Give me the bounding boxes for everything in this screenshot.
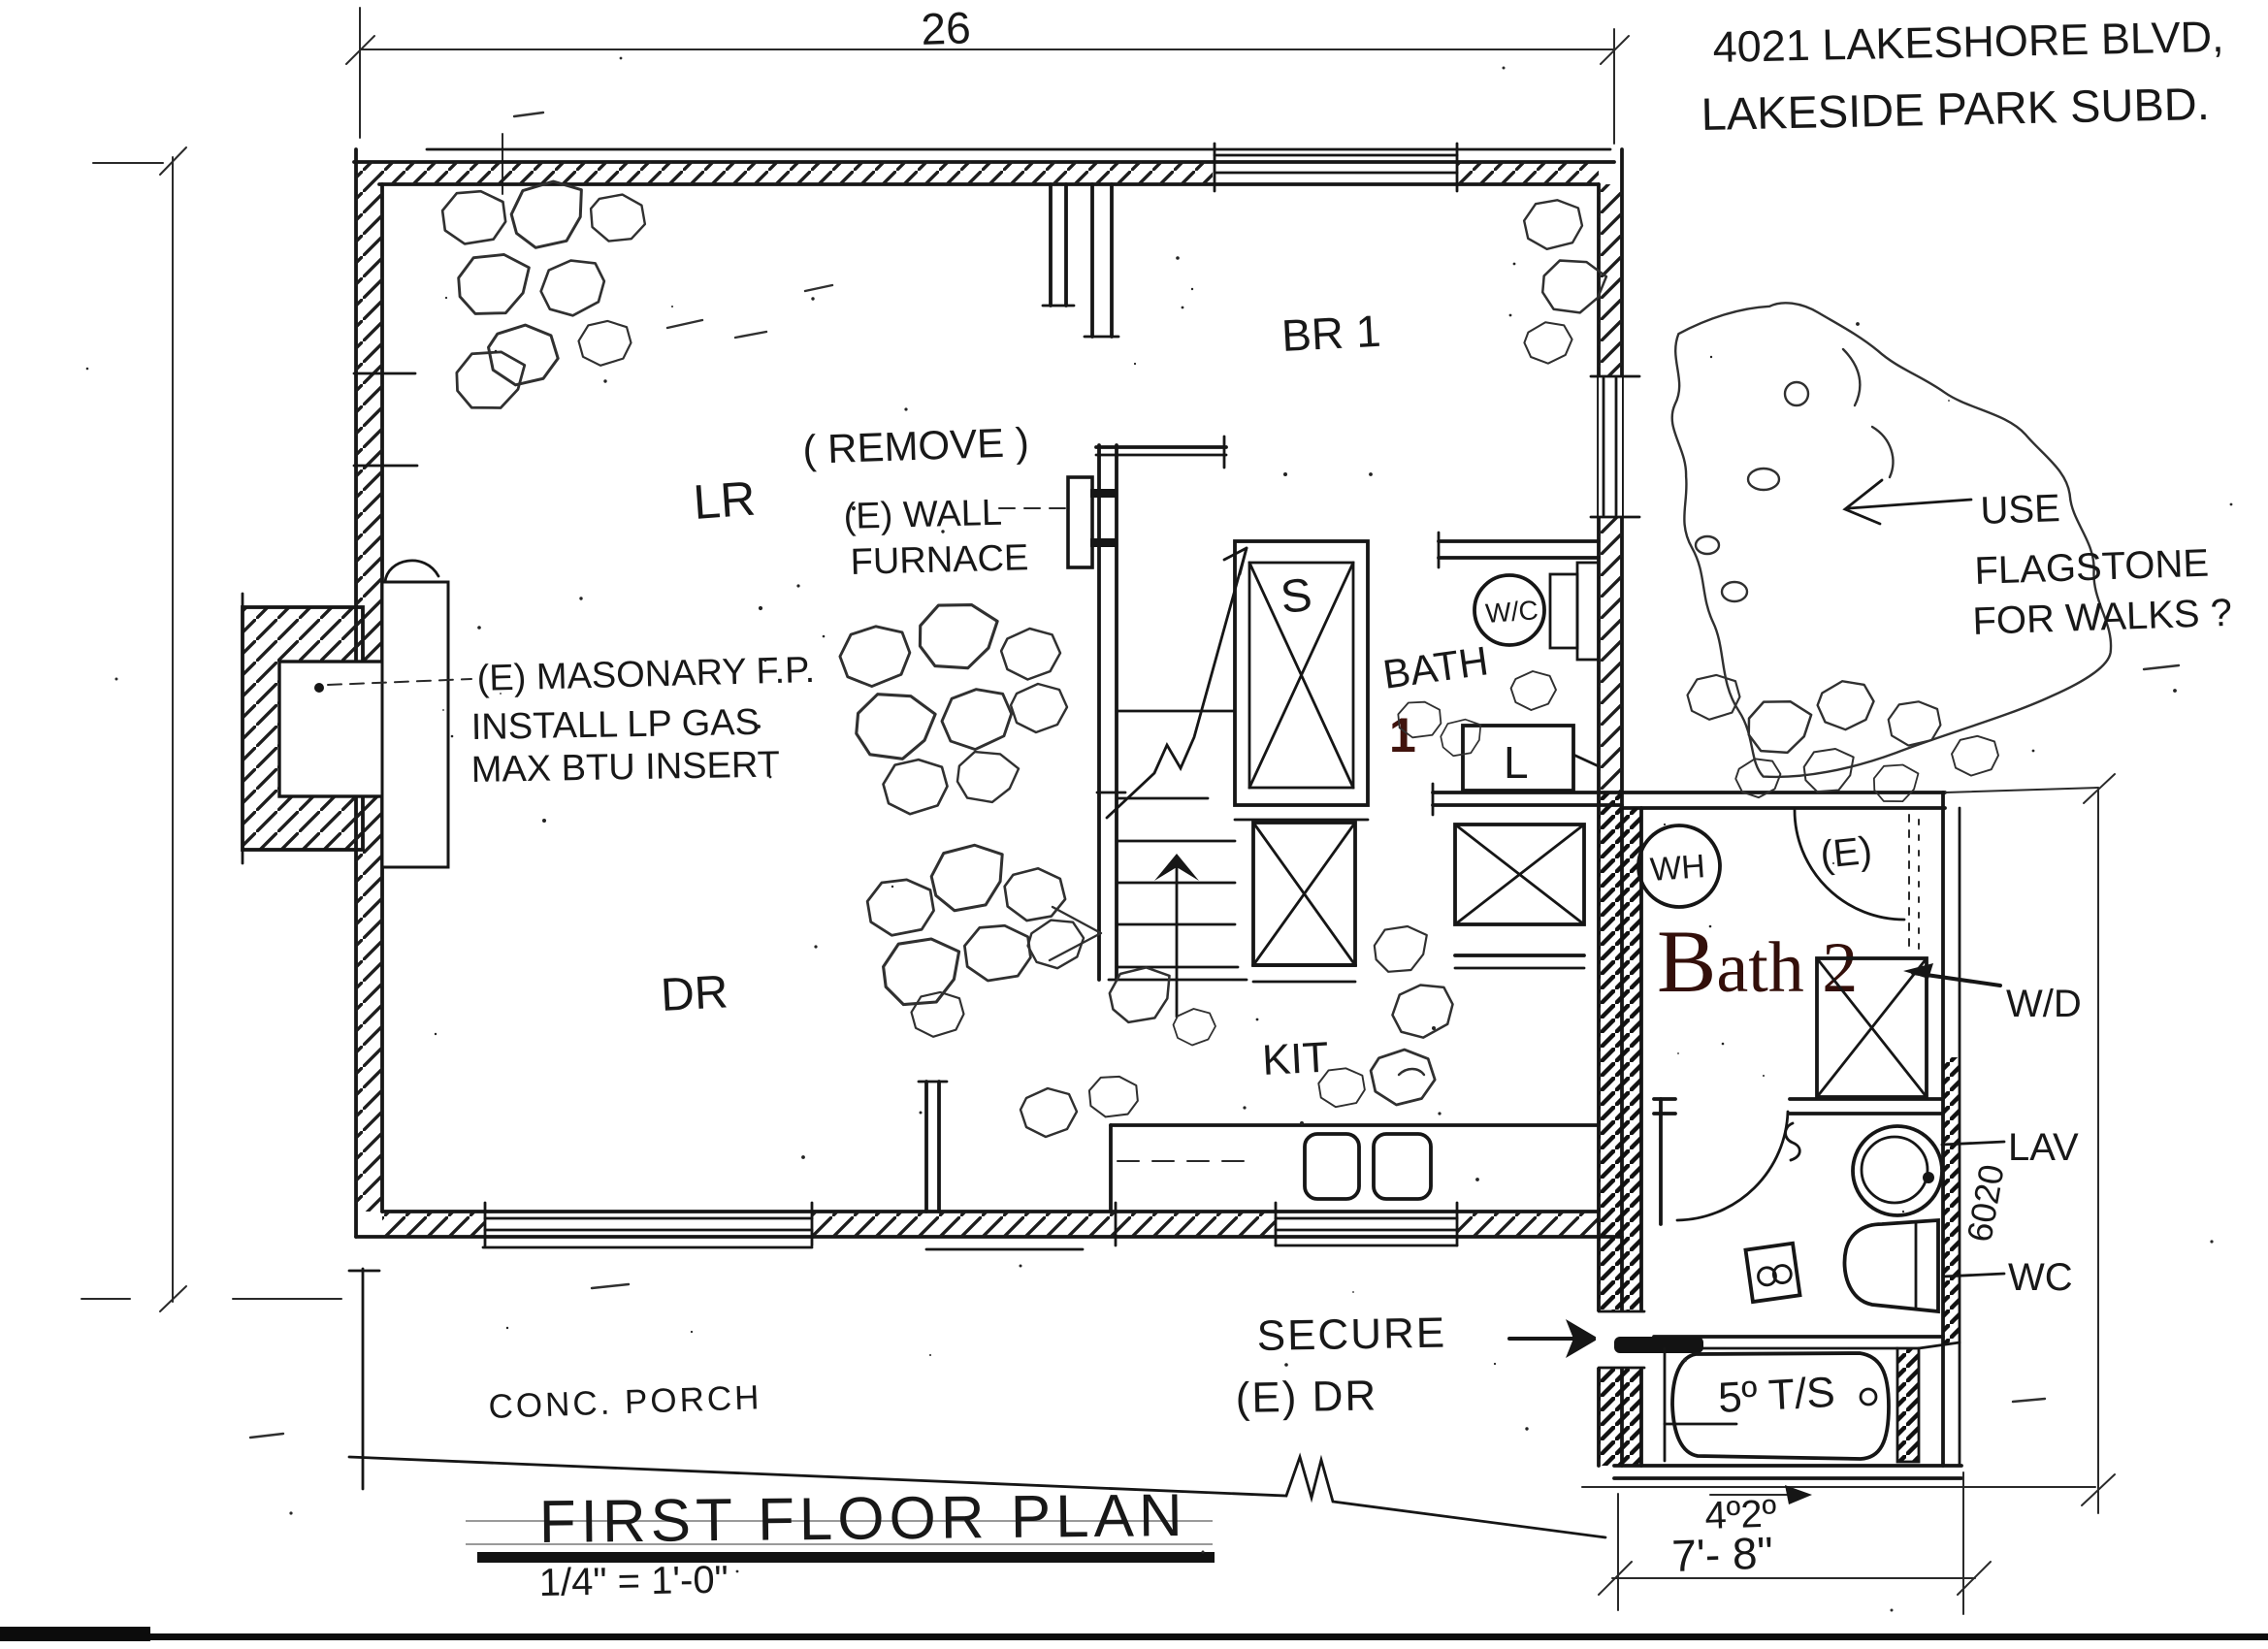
svg-text:FLAGSTONE: FLAGSTONE bbox=[1974, 542, 2210, 593]
svg-text:FOR WALKS ?: FOR WALKS ? bbox=[1972, 592, 2233, 643]
svg-text:7'- 8": 7'- 8" bbox=[1671, 1527, 1774, 1581]
svg-text:LR: LR bbox=[692, 471, 758, 530]
svg-text:DR: DR bbox=[660, 966, 729, 1021]
svg-text:WC: WC bbox=[2008, 1256, 2073, 1299]
svg-text:W/D: W/D bbox=[2006, 983, 2082, 1025]
svg-text:INSTALL LP GAS: INSTALL LP GAS bbox=[470, 702, 760, 748]
svg-text:WH: WH bbox=[1649, 848, 1706, 889]
svg-text:LAKESIDE PARK SUBD.: LAKESIDE PARK SUBD. bbox=[1701, 78, 2210, 140]
svg-text:( REMOVE ): ( REMOVE ) bbox=[802, 419, 1030, 472]
svg-text:L: L bbox=[1504, 737, 1529, 788]
svg-text:(E) DR: (E) DR bbox=[1235, 1372, 1377, 1422]
svg-text:26: 26 bbox=[921, 2, 972, 54]
svg-text:LAV: LAV bbox=[2008, 1126, 2079, 1169]
svg-text:5º T/S: 5º T/S bbox=[1717, 1369, 1836, 1422]
svg-text:S: S bbox=[1279, 569, 1314, 624]
svg-text:FURNACE: FURNACE bbox=[850, 537, 1029, 583]
svg-text:W/C: W/C bbox=[1484, 595, 1539, 629]
svg-text:(E): (E) bbox=[1818, 829, 1874, 877]
svg-text:USE: USE bbox=[1980, 487, 2061, 533]
svg-text:BR 1: BR 1 bbox=[1280, 306, 1382, 361]
svg-text:SECURE: SECURE bbox=[1256, 1309, 1446, 1360]
svg-text:1/4" = 1'-0": 1/4" = 1'-0" bbox=[538, 1559, 729, 1604]
svg-text:(E) WALL: (E) WALL bbox=[843, 493, 1002, 537]
svg-text:FIRST FLOOR PLAN: FIRST FLOOR PLAN bbox=[538, 1482, 1187, 1556]
svg-text:1: 1 bbox=[1389, 708, 1416, 762]
svg-text:KIT: KIT bbox=[1261, 1033, 1330, 1084]
svg-text:MAX BTU INSERT: MAX BTU INSERT bbox=[470, 744, 780, 791]
